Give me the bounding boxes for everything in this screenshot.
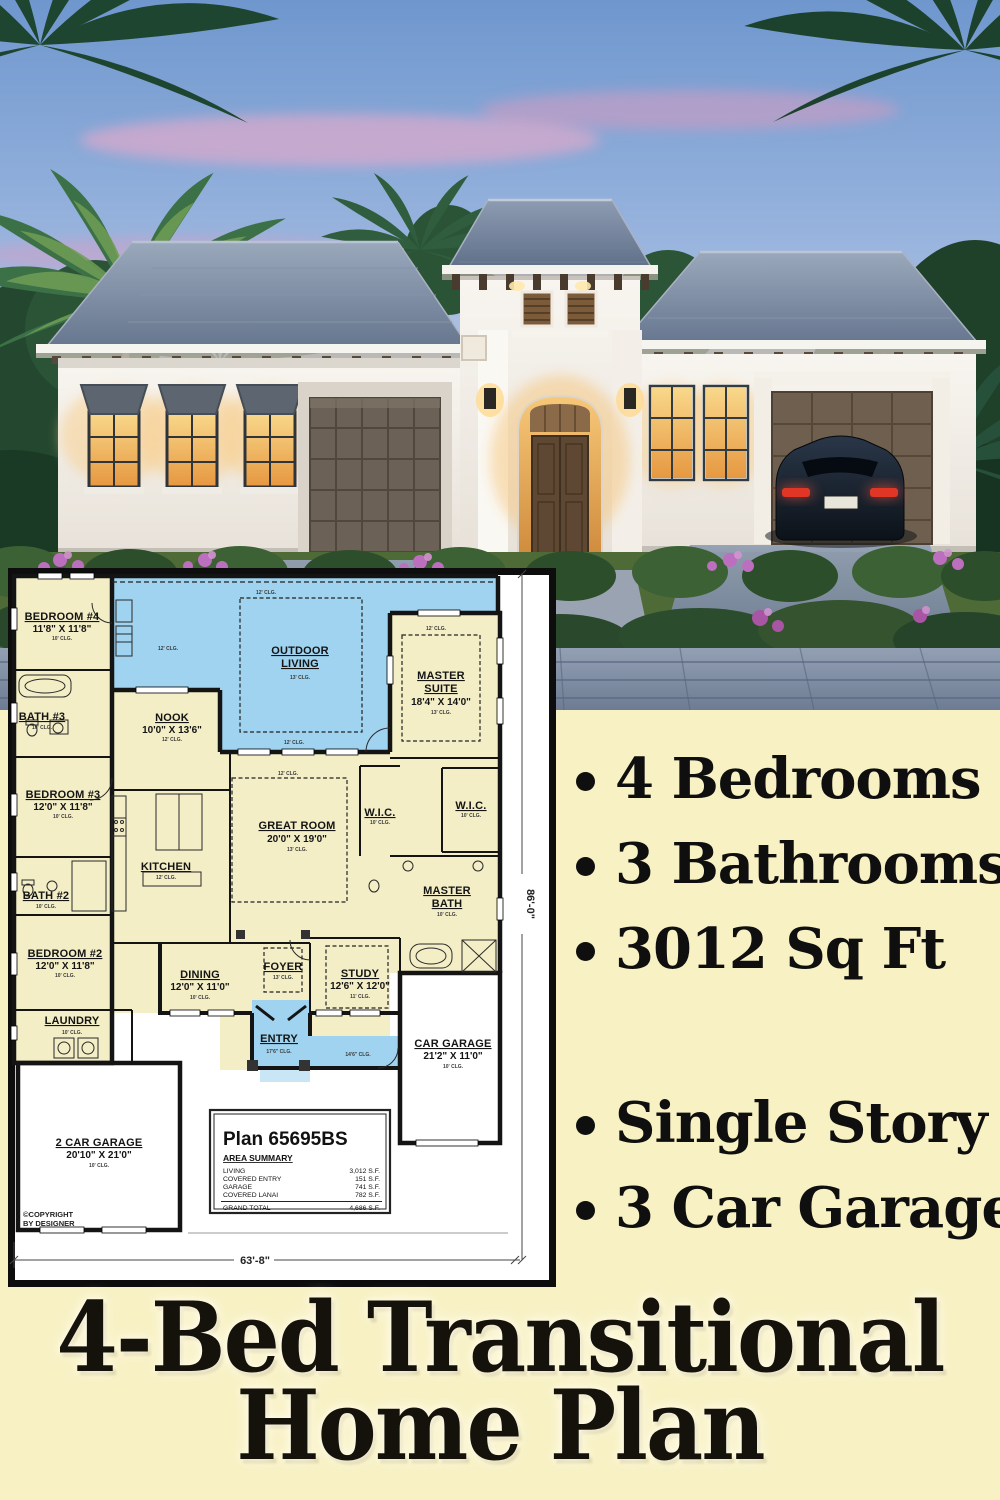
awning-windows [81, 385, 303, 494]
feature-label: 3 Car Garage [615, 1180, 1000, 1236]
svg-text:12'6" X 12'0": 12'6" X 12'0" [330, 981, 390, 992]
svg-text:11' CLG.: 11' CLG. [350, 994, 370, 1000]
svg-text:GARAGE: GARAGE [223, 1184, 253, 1191]
bullet-icon [576, 1201, 595, 1220]
svg-text:FOYER: FOYER [264, 961, 303, 973]
svg-text:12' CLG.: 12' CLG. [284, 740, 305, 746]
left-wing [36, 242, 476, 570]
license-plate [824, 496, 858, 509]
svg-text:GRAND TOTAL: GRAND TOTAL [223, 1205, 271, 1212]
bullet-icon [576, 772, 595, 791]
svg-text:2 CAR GARAGE: 2 CAR GARAGE [56, 1137, 143, 1149]
plan-number: Plan 65695BS [223, 1129, 348, 1150]
feature-label: 4 Bedrooms [615, 751, 981, 807]
feature-label: 3 Bathrooms [615, 836, 1000, 892]
svg-text:11'8" X 11'8": 11'8" X 11'8" [33, 624, 92, 635]
pin-graphic: BEDROOM #4 11'8" X 11'8" 10' CLG. BATH #… [0, 0, 1000, 1500]
bullet-icon [576, 857, 595, 876]
svg-text:W.I.C.: W.I.C. [455, 800, 486, 812]
entry-tower [442, 200, 658, 572]
feature-item: 3 Bathrooms [566, 821, 1000, 906]
svg-text:782 S.F.: 782 S.F. [355, 1192, 380, 1199]
svg-text:10' CLG.: 10' CLG. [36, 904, 57, 910]
bullet-icon [576, 1116, 595, 1135]
copyright-note: ©COPYRIGHT BY DESIGNER [23, 1210, 75, 1228]
svg-text:10' CLG.: 10' CLG. [52, 636, 73, 642]
svg-text:LIVING: LIVING [223, 1168, 245, 1175]
overall-width-dim: 63'-8" [240, 1255, 270, 1267]
feature-item: 4 Bedrooms [566, 736, 1000, 821]
pin-title: 4-Bed Transitional Home Plan [40, 1294, 960, 1471]
wall-lantern-left [484, 388, 496, 409]
svg-text:18'4" X 14'0": 18'4" X 14'0" [411, 697, 471, 708]
svg-text:ENTRY: ENTRY [260, 1033, 298, 1045]
svg-text:12'0" X 11'0": 12'0" X 11'0" [170, 982, 230, 993]
svg-text:13' CLG.: 13' CLG. [287, 847, 308, 853]
svg-text:13' CLG.: 13' CLG. [431, 710, 452, 716]
svg-text:BEDROOM #2: BEDROOM #2 [28, 948, 103, 960]
svg-text:3,012 S.F.: 3,012 S.F. [349, 1168, 380, 1175]
svg-text:10' CLG.: 10' CLG. [53, 814, 74, 820]
wall-medallion [462, 336, 486, 360]
svg-text:10' CLG.: 10' CLG. [55, 973, 76, 979]
area-summary-heading: AREA SUMMARY [223, 1153, 293, 1163]
svg-text:STUDY: STUDY [341, 968, 380, 980]
svg-text:BATH: BATH [432, 898, 463, 910]
svg-text:20'0" X 19'0": 20'0" X 19'0" [267, 834, 327, 845]
svg-text:12' CLG.: 12' CLG. [256, 590, 277, 596]
svg-text:151 S.F.: 151 S.F. [355, 1176, 380, 1183]
feature-label: 3012 Sq Ft [615, 921, 945, 977]
svg-text:COVERED ENTRY: COVERED ENTRY [223, 1176, 282, 1183]
svg-text:MASTER: MASTER [423, 885, 471, 897]
bullet-icon [576, 942, 595, 961]
svg-text:12' CLG.: 12' CLG. [162, 737, 183, 743]
front-door [532, 436, 588, 570]
svg-text:17'6" CLG.: 17'6" CLG. [266, 1049, 292, 1055]
svg-text:10' CLG.: 10' CLG. [461, 813, 482, 819]
svg-text:10' CLG.: 10' CLG. [437, 912, 458, 918]
svg-text:14'6" CLG.: 14'6" CLG. [345, 1052, 371, 1058]
feature-list-primary: 4 Bedrooms 3 Bathrooms 3012 Sq Ft [566, 736, 1000, 991]
svg-text:13' CLG.: 13' CLG. [290, 675, 311, 681]
svg-text:BATH #2: BATH #2 [23, 890, 69, 902]
svg-text:21'2" X 11'0": 21'2" X 11'0" [423, 1051, 483, 1062]
svg-text:COVERED LANAI: COVERED LANAI [223, 1192, 278, 1199]
plan-info-box: Plan 65695BS AREA SUMMARY LIVING 3,012 S… [210, 1110, 390, 1213]
svg-text:OUTDOOR: OUTDOOR [271, 645, 329, 657]
overall-depth-dim: 86'-0" [524, 889, 536, 919]
svg-text:BATH #3: BATH #3 [19, 711, 65, 723]
left-garage-door [310, 398, 440, 552]
feature-label: Single Story [615, 1095, 987, 1151]
svg-text:LAUNDRY: LAUNDRY [45, 1015, 100, 1027]
svg-text:10' CLG.: 10' CLG. [190, 995, 211, 1001]
wall-lantern-right [624, 388, 636, 409]
svg-text:4,686 S.F.: 4,686 S.F. [349, 1205, 380, 1212]
svg-text:12'0" X 11'8": 12'0" X 11'8" [35, 961, 95, 972]
feature-list-secondary: Single Story 3 Car Garage [566, 1080, 1000, 1250]
svg-text:13' CLG.: 13' CLG. [273, 975, 294, 981]
svg-text:741 S.F.: 741 S.F. [355, 1184, 380, 1191]
feature-item: 3 Car Garage [566, 1165, 1000, 1250]
title-line-2: Home Plan [40, 1382, 960, 1470]
feature-item: Single Story [566, 1080, 1000, 1165]
floor-plan: BEDROOM #4 11'8" X 11'8" 10' CLG. BATH #… [8, 568, 556, 1287]
svg-text:12' CLG.: 12' CLG. [158, 646, 179, 652]
svg-text:12' CLG.: 12' CLG. [156, 875, 177, 881]
svg-text:MASTER: MASTER [417, 670, 465, 682]
svg-text:10'0" X 13'6": 10'0" X 13'6" [142, 725, 202, 736]
svg-text:12' CLG.: 12' CLG. [278, 771, 299, 777]
svg-text:DINING: DINING [180, 969, 220, 981]
svg-text:©COPYRIGHT: ©COPYRIGHT [23, 1210, 74, 1219]
svg-text:20'10" X 21'0": 20'10" X 21'0" [66, 1150, 132, 1161]
svg-text:10' CLG.: 10' CLG. [62, 1030, 83, 1036]
svg-text:BY DESIGNER: BY DESIGNER [23, 1219, 75, 1228]
svg-text:SUITE: SUITE [424, 683, 457, 695]
svg-text:12' CLG.: 12' CLG. [426, 626, 447, 632]
svg-text:10' CLG.: 10' CLG. [89, 1163, 110, 1169]
svg-text:10' CLG.: 10' CLG. [443, 1064, 464, 1070]
svg-text:LIVING: LIVING [281, 658, 319, 670]
svg-text:BEDROOM #3: BEDROOM #3 [26, 789, 101, 801]
svg-text:12'0" X 11'8": 12'0" X 11'8" [33, 802, 93, 813]
svg-text:CAR GARAGE: CAR GARAGE [414, 1038, 491, 1050]
svg-text:BEDROOM #4: BEDROOM #4 [25, 611, 100, 623]
svg-text:KITCHEN: KITCHEN [141, 861, 191, 873]
feature-item: 3012 Sq Ft [566, 906, 1000, 991]
svg-text:10' CLG.: 10' CLG. [370, 820, 391, 826]
svg-text:GREAT ROOM: GREAT ROOM [259, 820, 336, 832]
svg-text:W.I.C.: W.I.C. [364, 807, 395, 819]
svg-text:10' CLG.: 10' CLG. [32, 725, 53, 731]
svg-text:NOOK: NOOK [155, 712, 189, 724]
